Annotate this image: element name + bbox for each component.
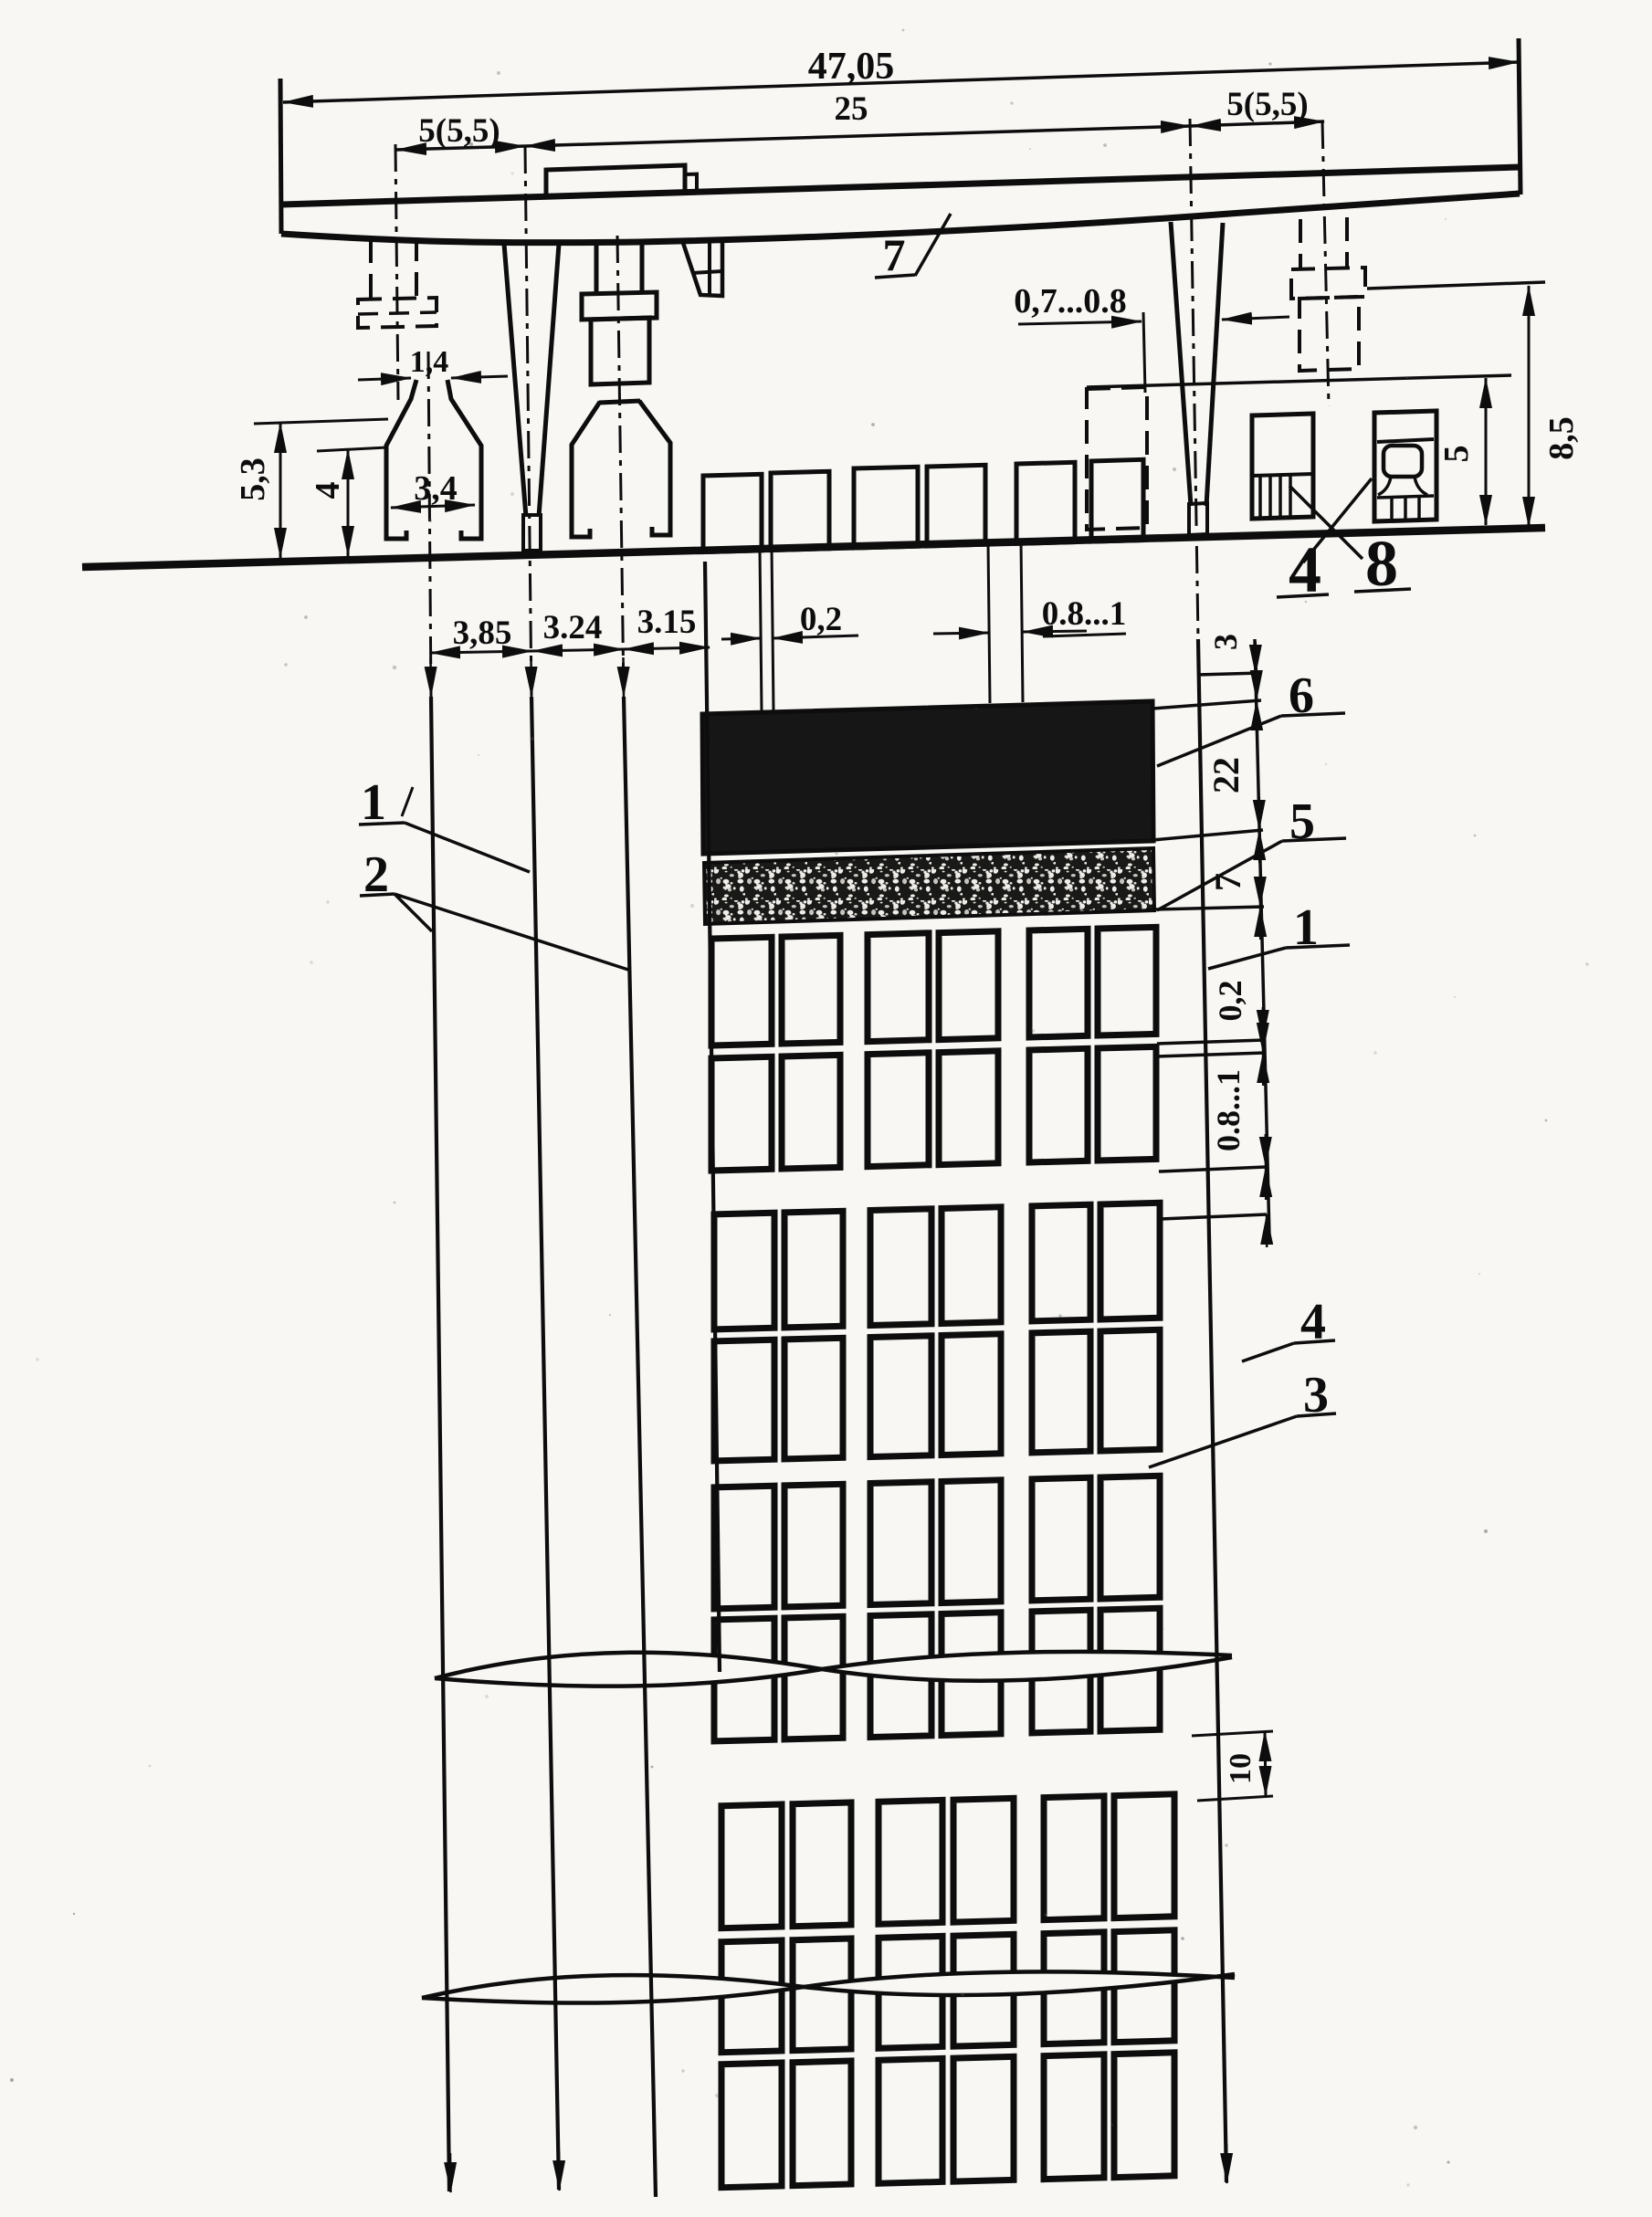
svg-text:0.8...1: 0.8...1 (1042, 595, 1127, 633)
svg-text:0,2: 0,2 (1212, 981, 1248, 1022)
svg-text:47,05: 47,05 (808, 46, 895, 88)
svg-text:0,2: 0,2 (800, 601, 842, 638)
svg-text:5(5,5): 5(5,5) (1226, 86, 1308, 123)
svg-text:3.24: 3.24 (543, 609, 603, 646)
svg-text:8,5: 8,5 (1542, 416, 1581, 460)
svg-text:7: 7 (1207, 873, 1248, 891)
svg-text:10: 10 (1224, 1753, 1257, 1784)
svg-text:3.15: 3.15 (637, 604, 697, 641)
svg-text:22: 22 (1205, 757, 1247, 793)
svg-text:7: 7 (883, 229, 906, 280)
svg-text:1,4: 1,4 (410, 345, 449, 379)
svg-text:5: 5 (1437, 446, 1476, 463)
svg-text:4: 4 (309, 482, 347, 499)
svg-text:3,4: 3,4 (414, 469, 458, 508)
svg-text:0.8...1: 0.8...1 (1210, 1069, 1247, 1151)
svg-text:25: 25 (835, 90, 868, 128)
svg-text:3: 3 (1207, 634, 1244, 650)
svg-text:5(5,5): 5(5,5) (418, 112, 500, 150)
svg-text:0,7...0.8: 0,7...0.8 (1014, 282, 1127, 320)
svg-text:5,3: 5,3 (234, 457, 272, 501)
svg-text:3,85: 3,85 (453, 615, 512, 652)
